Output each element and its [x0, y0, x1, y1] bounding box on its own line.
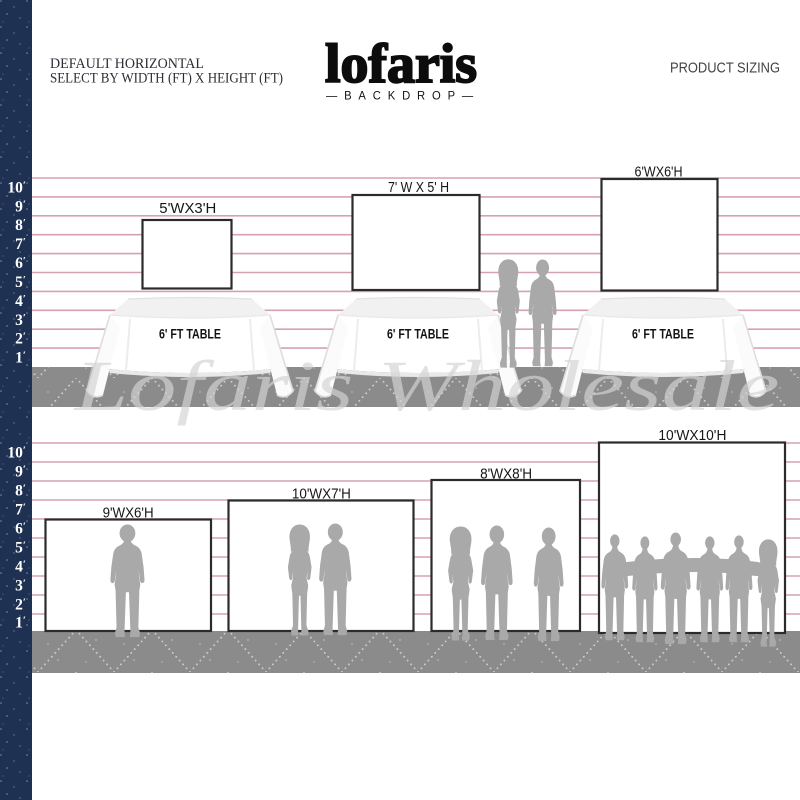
svg-text:10'WX7'H: 10'WX7'H — [292, 486, 351, 503]
svg-text:lofaris: lofaris — [325, 33, 477, 94]
svg-text:6' FT TABLE: 6' FT TABLE — [632, 327, 694, 342]
svg-text:5'WX3'H: 5'WX3'H — [159, 200, 216, 217]
svg-text:—BACKDROP—: —BACKDROP— — [326, 91, 480, 103]
svg-text:Lofaris Wholesale: Lofaris Wholesale — [73, 346, 779, 426]
svg-text:10'WX10'H: 10'WX10'H — [658, 427, 726, 444]
svg-text:9'WX6'H: 9'WX6'H — [103, 505, 154, 522]
svg-text:6' FT TABLE: 6' FT TABLE — [387, 327, 449, 342]
svg-text:PRODUCT SIZING: PRODUCT SIZING — [670, 61, 780, 77]
svg-text:SELECT BY WIDTH (FT) X HEIGHT: SELECT BY WIDTH (FT) X HEIGHT (FT) — [50, 71, 283, 87]
svg-text:6'WX6'H: 6'WX6'H — [635, 164, 683, 181]
svg-text:8'WX8'H: 8'WX8'H — [480, 466, 532, 483]
svg-text:7' W X 5' H: 7' W X 5' H — [388, 179, 449, 196]
svg-text:6' FT TABLE: 6' FT TABLE — [159, 327, 221, 342]
